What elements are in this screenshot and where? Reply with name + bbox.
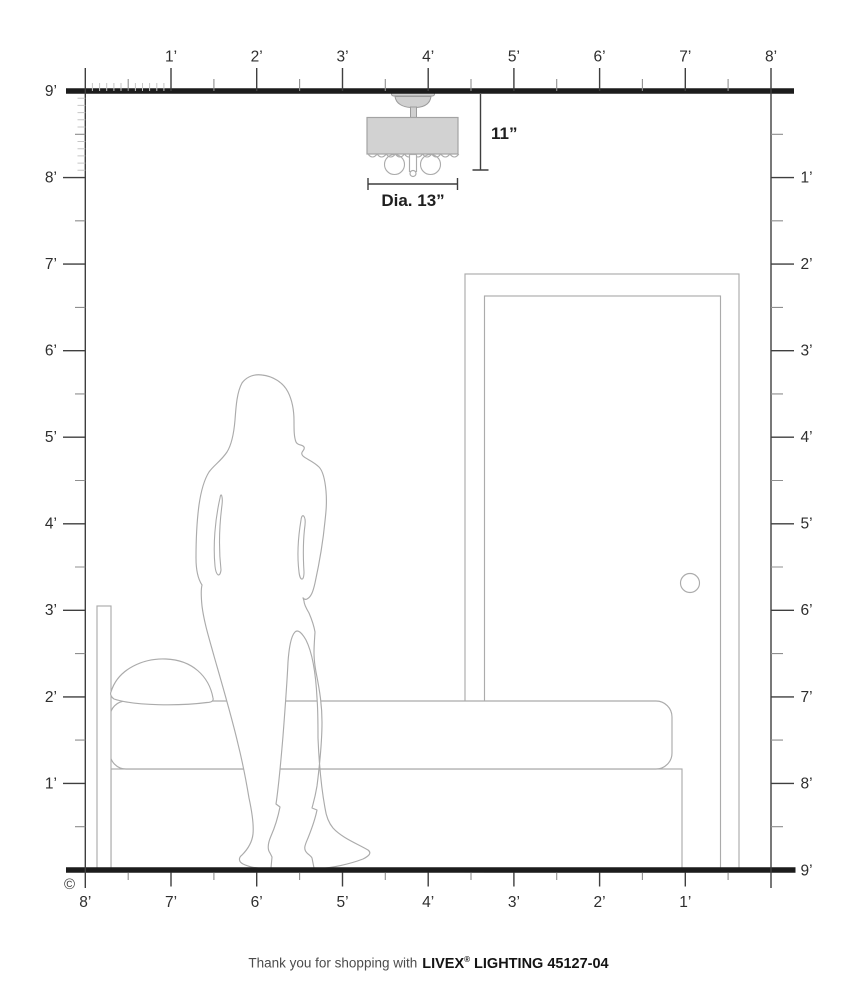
ruler-label: 4’ (422, 49, 434, 66)
bottom-ruler-major-ticks (171, 873, 685, 887)
fixture-stem (411, 107, 417, 119)
ruler-label: 4’ (422, 894, 434, 911)
footer-thanks-text: Thank you for shopping with (248, 956, 417, 971)
fixture-left-scroll-arm (385, 155, 405, 175)
ruler-label: 5’ (336, 894, 348, 911)
ruler-label: 1’ (165, 49, 177, 66)
ruler-label: 2’ (45, 689, 57, 706)
ruler-label: 5’ (45, 429, 57, 446)
height-dimension-label: 11” (491, 124, 517, 143)
left-ruler-half-ticks (75, 134, 85, 826)
product-model-number: LIGHTING 45127-04 (474, 956, 609, 972)
bed-headboard-post (97, 606, 111, 870)
ruler-label: 8’ (801, 775, 813, 792)
ruler-label: 8’ (79, 894, 91, 911)
ruler-label: 2’ (594, 894, 606, 911)
ruler-label: 2’ (801, 256, 813, 273)
fixture-center-column (410, 155, 417, 172)
ruler-label: 8’ (45, 170, 57, 187)
ruler-label: 1’ (679, 894, 691, 911)
bottom-ruler-labels: 8’ 7’ 6’ 5’ 4’ 3’ 2’ 1’ (79, 894, 691, 911)
ruler-label: 5’ (508, 49, 520, 66)
ruler-label: 3’ (801, 343, 813, 360)
ruler-label: 4’ (45, 516, 57, 533)
ruler-label: 8’ (765, 49, 777, 66)
ruler-label: 1’ (801, 170, 813, 187)
room-scale-diagram: 11” Dia. 13” 1’ (0, 0, 857, 1000)
registered-trademark-symbol: ® (464, 955, 470, 964)
ceiling-light-fixture (367, 92, 459, 177)
right-ruler-half-ticks (771, 134, 783, 826)
ruler-label: 4’ (801, 429, 813, 446)
ruler-label: 7’ (45, 256, 57, 273)
height-dimension-line (473, 94, 489, 170)
ruler-label: 7’ (165, 894, 177, 911)
ruler-label: 2’ (251, 49, 263, 66)
door-knob (681, 574, 700, 593)
ruler-label: 3’ (508, 894, 520, 911)
ruler-label: 9’ (801, 863, 813, 880)
ruler-label: 3’ (336, 49, 348, 66)
brand-name: LIVEX (422, 956, 464, 972)
ruler-label: 9’ (45, 83, 57, 100)
footer-caption: Thank you for shopping withLIVEX®LIGHTIN… (0, 955, 857, 972)
right-ruler-labels: 1’ 2’ 3’ 4’ 5’ 6’ 7’ 8’ 9’ (801, 170, 813, 880)
ruler-label: 1’ (45, 775, 57, 792)
diameter-dimension-line (368, 178, 458, 190)
copyright-symbol: © (64, 876, 75, 893)
ruler-label: 7’ (801, 689, 813, 706)
fixture-canopy (395, 97, 431, 108)
top-ruler-major-ticks (171, 68, 685, 91)
ruler-label: 6’ (594, 49, 606, 66)
ruler-label: 3’ (45, 602, 57, 619)
fixture-finial (410, 171, 416, 177)
ruler-label: 7’ (679, 49, 691, 66)
ruler-label: 6’ (251, 894, 263, 911)
diameter-dimension-label: Dia. 13” (381, 191, 444, 210)
ruler-label: 5’ (801, 516, 813, 533)
ruler-label: 6’ (45, 343, 57, 360)
fixture-drum-shade (367, 118, 458, 155)
dimension-diagram-page: 11” Dia. 13” 1’ (0, 0, 857, 1000)
top-ruler-labels: 1’ 2’ 3’ 4’ 5’ 6’ 7’ 8’ (165, 49, 777, 66)
bed-pillow (111, 659, 214, 705)
bed-mattress (110, 701, 672, 769)
left-ruler-labels: 9’ 8’ 7’ 6’ 5’ 4’ 3’ 2’ 1’ (45, 83, 57, 792)
bed-base (111, 769, 682, 870)
fixture-right-scroll-arm (421, 155, 441, 175)
ruler-label: 6’ (801, 602, 813, 619)
